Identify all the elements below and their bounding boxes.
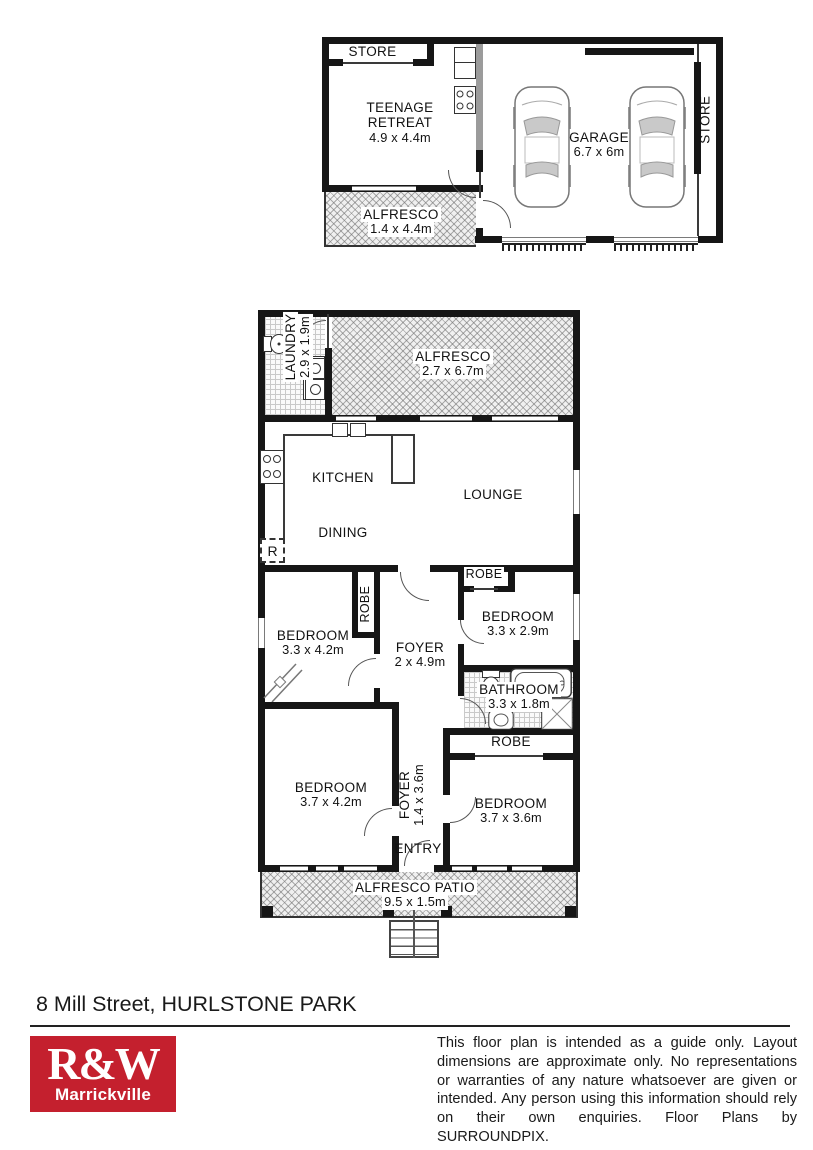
room-label-store-side: STORE [697, 90, 712, 150]
window [336, 416, 376, 421]
agency-logo: R&W Marrickville [30, 1036, 176, 1112]
wall [258, 702, 398, 709]
room-label-store-top: STORE [330, 44, 415, 59]
wall [475, 236, 502, 243]
stove-icon [260, 450, 284, 484]
sink-icon [332, 423, 348, 437]
wall [443, 757, 450, 795]
wall-thin [697, 44, 699, 62]
room-label-patio: ALFRESCO PATIO 9.5 x 1.5m [330, 880, 500, 910]
patio-post [262, 906, 273, 917]
room-label-bedroom1: BEDROOM 3.3 x 4.2m [258, 628, 368, 658]
stove-icon [454, 86, 476, 114]
stairs-center-line [413, 920, 415, 958]
wall-thin [470, 588, 498, 590]
wall [476, 150, 483, 172]
room-label-robe-bed2: ROBE [460, 567, 508, 581]
basin-icon [488, 710, 514, 730]
roller-door-icon [502, 243, 586, 251]
room-label-foyer2: FOYER 1.4 x 3.6m [397, 763, 427, 827]
window [512, 866, 542, 871]
room-label-entry: ENTRY [394, 841, 442, 856]
garage-door [502, 237, 586, 242]
room-label-teenage-retreat: TEENAGE RETREAT 4.9 x 4.4m [348, 100, 452, 145]
door-arc [400, 572, 429, 601]
agency-logo-brand: R&W [47, 1043, 159, 1084]
wall [329, 59, 343, 66]
fireplace-icon [262, 658, 304, 702]
window [280, 866, 308, 871]
wall-thin [343, 62, 413, 64]
property-address: 8 Mill Street, HURLSTONE PARK [36, 992, 357, 1017]
wall [322, 37, 329, 192]
window [573, 594, 580, 640]
wall-thin [697, 174, 699, 236]
window [352, 186, 416, 191]
window [452, 866, 472, 871]
floorplan-page: STORE TEENAGE RETREAT 4.9 x 4.4m GARAGE … [0, 0, 813, 1150]
window [316, 866, 338, 871]
wall [258, 565, 398, 572]
fridge-icon [454, 47, 476, 79]
wall [258, 310, 265, 872]
wall-kitchenette [476, 44, 483, 150]
roller-door-icon [614, 243, 698, 251]
wall [322, 37, 723, 44]
room-label-lounge: LOUNGE [453, 487, 533, 502]
room-label-garage: GARAGE 6.7 x 6m [556, 130, 642, 160]
room-label-robe-bed4: ROBE [478, 734, 544, 749]
divider-rule [30, 1025, 790, 1027]
window [477, 866, 507, 871]
kitchen-bench [283, 434, 415, 436]
wall [698, 236, 723, 243]
disclaimer-text: This floor plan is intended as a guide o… [437, 1034, 797, 1147]
kitchen-bench [391, 482, 415, 484]
room-label-bedroom2: BEDROOM 3.3 x 2.9m [462, 609, 574, 639]
room-label-alfresco-house: ALFRESCO 2.7 x 6.7m [393, 349, 513, 379]
sink-icon [350, 423, 366, 437]
window [420, 416, 472, 421]
wall [374, 688, 380, 702]
room-label-laundry: LAUNDRY 2.9 x 1.9m [283, 310, 313, 384]
door-arc [364, 808, 392, 836]
room-label-bedroom4: BEDROOM 3.7 x 3.6m [455, 796, 567, 826]
room-label-kitchen: KITCHEN [305, 470, 381, 485]
door-arc [483, 200, 511, 228]
patio-post [565, 906, 576, 917]
wall [573, 310, 580, 872]
window [344, 866, 377, 871]
room-label-bedroom3: BEDROOM 3.7 x 4.2m [276, 780, 386, 810]
kitchen-bench [391, 436, 393, 484]
wall-thin [479, 172, 481, 198]
wall-thin [327, 314, 329, 348]
wall [543, 753, 580, 760]
wall [427, 44, 434, 66]
agency-logo-office: Marrickville [55, 1085, 151, 1105]
room-label-alfresco-outbuilding: ALFRESCO 1.4 x 4.4m [345, 207, 457, 237]
wall [325, 348, 332, 422]
sliding-door [492, 416, 558, 421]
kitchen-bench [413, 434, 415, 484]
wall-thin [475, 755, 543, 757]
wall [586, 236, 614, 243]
garage-door [614, 237, 698, 242]
wall [585, 48, 694, 55]
window [573, 470, 580, 514]
room-label-robe-bed1: ROBE [358, 581, 372, 627]
wall [716, 37, 723, 243]
room-label-foyer: FOYER 2 x 4.9m [380, 640, 460, 670]
door-arc [348, 658, 376, 686]
fridge-icon: R [260, 538, 285, 563]
room-label-bathroom: BATHROOM 3.3 x 1.8m [463, 682, 575, 712]
room-label-dining: DINING [307, 525, 379, 540]
